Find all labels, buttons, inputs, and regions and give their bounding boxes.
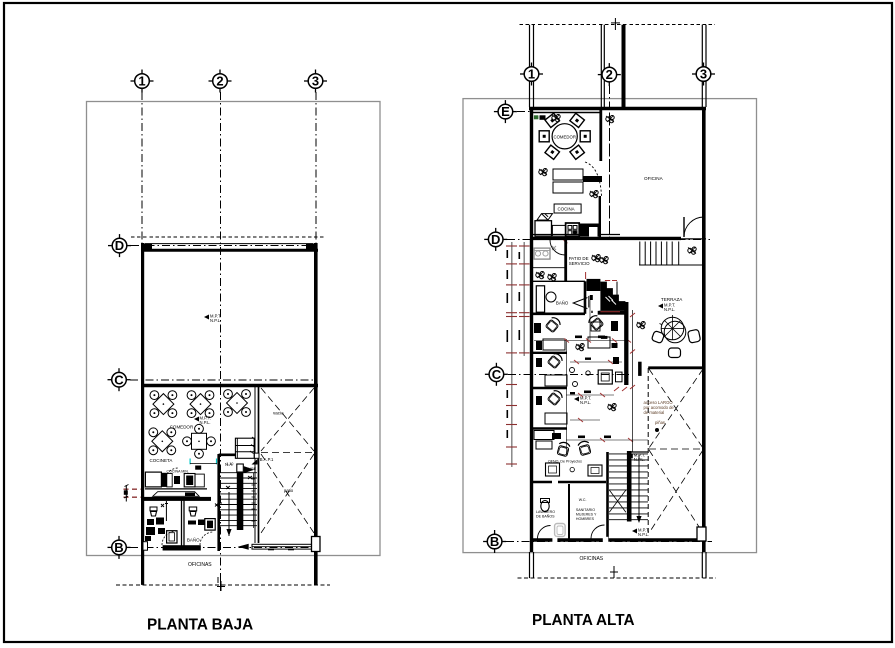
svg-text:N.P.L.: N.P.L. bbox=[210, 318, 221, 323]
svg-text:OFICINA: OFICINA bbox=[644, 176, 664, 181]
svg-text:2: 2 bbox=[216, 74, 223, 89]
svg-text:TERRAZA: TERRAZA bbox=[661, 297, 683, 302]
svg-text:C: C bbox=[114, 372, 124, 387]
svg-text:COMEDOR: COMEDOR bbox=[553, 134, 575, 139]
svg-text:E: E bbox=[501, 104, 510, 119]
svg-text:B.A.P.1: B.A.P.1 bbox=[260, 457, 274, 462]
svg-text:vacio: vacio bbox=[273, 411, 284, 416]
svg-text:N.P.L.: N.P.L. bbox=[664, 307, 675, 312]
svg-text:MUJERES Y: MUJERES Y bbox=[576, 513, 597, 517]
svg-text:SUBE: SUBE bbox=[246, 467, 257, 471]
svg-text:SERVICIO: SERVICIO bbox=[569, 261, 590, 266]
svg-text:2: 2 bbox=[606, 67, 613, 82]
svg-text:DE BAÑOS: DE BAÑOS bbox=[536, 514, 555, 519]
svg-text:W.C.: W.C. bbox=[579, 498, 587, 502]
svg-text:piñas: piñas bbox=[655, 420, 665, 425]
svg-text:OFICINAS: OFICINAS bbox=[580, 556, 604, 562]
svg-text:OFICINAS: OFICINAS bbox=[188, 562, 212, 568]
svg-text:SANITARIO: SANITARIO bbox=[576, 508, 595, 512]
svg-text:3: 3 bbox=[700, 67, 707, 82]
svg-text:D: D bbox=[491, 232, 500, 247]
svg-text:B: B bbox=[490, 534, 499, 549]
svg-text:N.P.L.: N.P.L. bbox=[200, 420, 211, 425]
svg-text:LAVADERO: LAVADERO bbox=[536, 510, 555, 514]
svg-text:patio: patio bbox=[284, 488, 294, 493]
svg-text:HOMBRES: HOMBRES bbox=[576, 517, 595, 521]
svg-text:N.A.: N.A. bbox=[225, 462, 233, 467]
svg-text:PLANTA BAJA: PLANTA BAJA bbox=[147, 617, 253, 634]
svg-text:N.P.L.: N.P.L. bbox=[580, 400, 591, 405]
svg-text:N.P.L.: N.P.L. bbox=[638, 532, 649, 537]
svg-text:PLANTA ALTA: PLANTA ALTA bbox=[532, 612, 635, 629]
svg-text:N.P.L.: N.P.L. bbox=[634, 457, 645, 462]
svg-text:C: C bbox=[492, 367, 502, 382]
svg-text:D: D bbox=[115, 238, 124, 253]
svg-text:COCINA: COCINA bbox=[558, 207, 575, 212]
svg-text:COCINETA: COCINETA bbox=[150, 458, 173, 463]
svg-text:BAÑO: BAÑO bbox=[556, 301, 569, 306]
svg-text:COMEDOR: COMEDOR bbox=[170, 425, 194, 430]
svg-text:1: 1 bbox=[138, 74, 145, 89]
svg-text:B: B bbox=[114, 540, 123, 555]
svg-text:de material: de material bbox=[644, 410, 665, 415]
svg-text:3: 3 bbox=[312, 74, 319, 89]
svg-text:1: 1 bbox=[528, 67, 535, 82]
svg-text:BAÑO: BAÑO bbox=[187, 537, 200, 543]
svg-text:OFNO. De Proyectos: OFNO. De Proyectos bbox=[548, 460, 582, 464]
